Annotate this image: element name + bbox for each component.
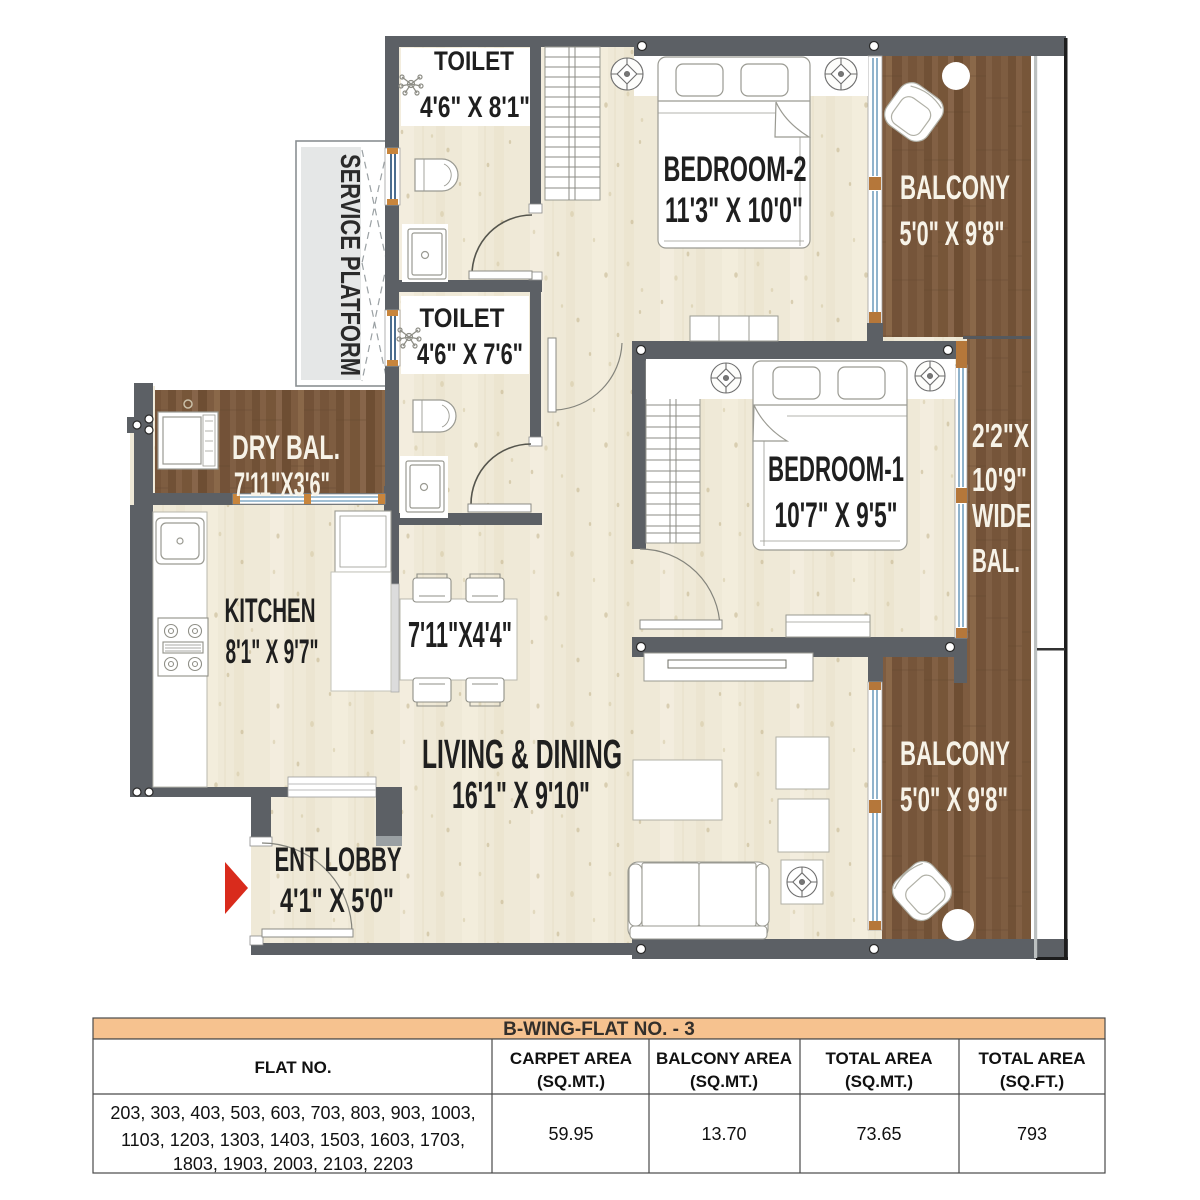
svg-text:73.65: 73.65 [856, 1124, 901, 1144]
svg-text:7'11"X4'4": 7'11"X4'4" [408, 614, 512, 655]
svg-text:10'7" X 9'5": 10'7" X 9'5" [775, 496, 898, 535]
svg-text:BALCONY: BALCONY [900, 735, 1010, 773]
svg-text:(SQ.MT.): (SQ.MT.) [845, 1072, 913, 1091]
svg-text:59.95: 59.95 [548, 1124, 593, 1144]
svg-text:1103, 1203, 1303, 1403, 1503,: 1103, 1203, 1303, 1403, 1503, 1603, 1703… [121, 1130, 465, 1150]
svg-text:LIVING & DINING: LIVING & DINING [422, 731, 622, 777]
svg-text:1803, 1903, 2003, 2103, 2203: 1803, 1903, 2003, 2103, 2203 [173, 1154, 413, 1174]
svg-text:KITCHEN: KITCHEN [225, 592, 316, 630]
svg-text:203, 303, 403, 503, 603, 703,: 203, 303, 403, 503, 603, 703, 803, 903, … [110, 1103, 475, 1123]
svg-text:BEDROOM-2: BEDROOM-2 [664, 150, 807, 189]
svg-text:BALCONY AREA: BALCONY AREA [656, 1049, 792, 1068]
svg-text:(SQ.FT.): (SQ.FT.) [1000, 1072, 1064, 1091]
svg-text:(SQ.MT.): (SQ.MT.) [690, 1072, 758, 1091]
svg-text:8'1" X 9'7": 8'1" X 9'7" [226, 633, 319, 671]
svg-text:4'6" X 8'1": 4'6" X 8'1" [420, 91, 530, 124]
svg-text:16'1" X 9'10": 16'1" X 9'10" [452, 775, 590, 817]
svg-text:DRY BAL.: DRY BAL. [232, 429, 340, 467]
svg-text:4'6" X 7'6": 4'6" X 7'6" [417, 338, 523, 371]
svg-text:5'0" X 9'8": 5'0" X 9'8" [900, 781, 1008, 819]
svg-text:TOILET: TOILET [434, 46, 514, 76]
svg-text:SERVICE PLATFORM: SERVICE PLATFORM [335, 154, 366, 376]
svg-text:BEDROOM-1: BEDROOM-1 [768, 450, 904, 489]
svg-text:TOTAL AREA: TOTAL AREA [825, 1049, 932, 1068]
svg-text:BALCONY: BALCONY [900, 169, 1010, 207]
svg-text:ENT LOBBY: ENT LOBBY [275, 841, 402, 879]
svg-text:10'9": 10'9" [972, 461, 1027, 498]
svg-text:TOTAL AREA: TOTAL AREA [978, 1049, 1085, 1068]
svg-text:B-WING-FLAT NO. - 3: B-WING-FLAT NO. - 3 [503, 1019, 695, 1040]
svg-text:BAL.: BAL. [972, 542, 1020, 579]
svg-text:4'1" X 5'0": 4'1" X 5'0" [280, 882, 394, 920]
svg-text:13.70: 13.70 [701, 1124, 746, 1144]
svg-text:793: 793 [1017, 1124, 1047, 1144]
svg-text:5'0" X 9'8": 5'0" X 9'8" [900, 215, 1005, 253]
svg-text:11'3" X 10'0": 11'3" X 10'0" [665, 191, 803, 230]
svg-text:(SQ.MT.): (SQ.MT.) [537, 1072, 605, 1091]
svg-text:TOILET: TOILET [420, 303, 505, 333]
svg-text:7'11"X3'6": 7'11"X3'6" [234, 466, 330, 504]
svg-text:FLAT NO.: FLAT NO. [254, 1058, 331, 1077]
svg-text:CARPET AREA: CARPET AREA [510, 1049, 632, 1068]
svg-text:2'2"X: 2'2"X [972, 417, 1029, 454]
svg-text:WIDE: WIDE [972, 497, 1031, 534]
